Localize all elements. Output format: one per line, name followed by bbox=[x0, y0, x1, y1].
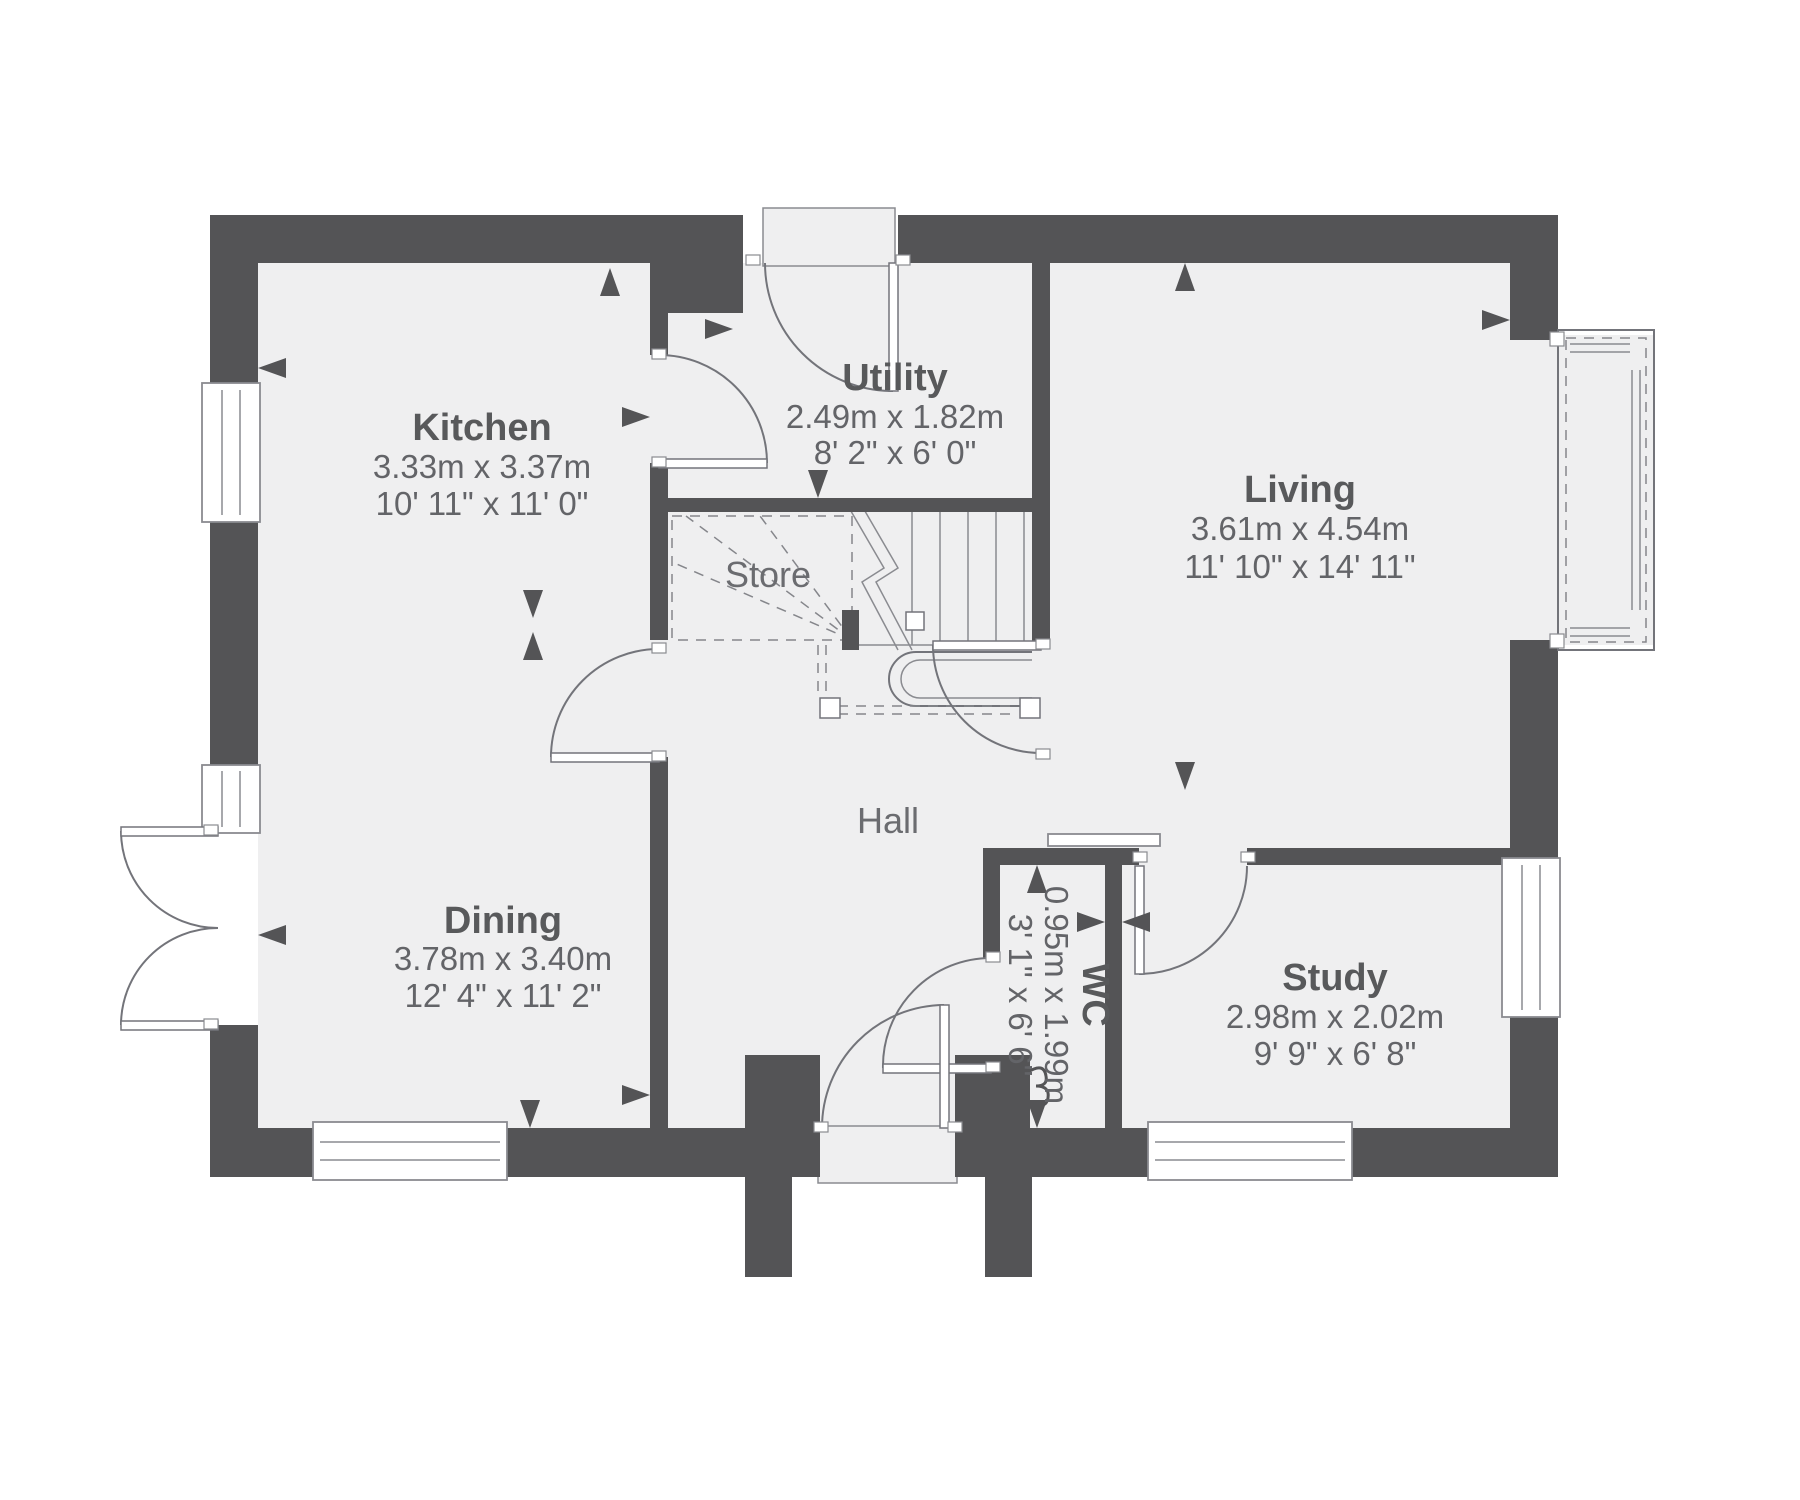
wall-dining-hall bbox=[650, 757, 668, 1128]
utility-title: Utility bbox=[842, 357, 948, 399]
floor-plan-page: Kitchen 3.33m x 3.37m 10' 11" x 11' 0" U… bbox=[0, 0, 1800, 1500]
entry-side-wall-left bbox=[745, 1055, 820, 1128]
wall-kitchen-store bbox=[650, 463, 668, 640]
dining-title: Dining bbox=[444, 900, 562, 942]
exterior-wall-right-lower bbox=[1510, 1015, 1558, 1177]
study-side-window bbox=[1502, 858, 1560, 1017]
wc-size-imperial: 3' 1" x 6' 6" bbox=[1002, 914, 1039, 1077]
wall-wc-top bbox=[983, 848, 1105, 865]
kitchen-window bbox=[202, 383, 260, 522]
living-size-imperial: 11' 10" x 14' 11" bbox=[1184, 548, 1415, 585]
wall-study-top-right bbox=[1247, 848, 1510, 865]
wc-size-metric: 0.95m x 1.99m bbox=[1038, 886, 1075, 1104]
bay-jamb bbox=[1550, 634, 1564, 648]
floor-areas bbox=[258, 208, 1654, 1183]
wall-kitchen-utility-corner bbox=[650, 215, 743, 313]
exterior-wall-right-upper bbox=[1510, 215, 1558, 340]
exterior-wall-bottom-3 bbox=[955, 1128, 1150, 1177]
wall-utility-stairs bbox=[650, 498, 1050, 512]
stair-newel-square bbox=[1020, 698, 1040, 718]
living-size-metric: 3.61m x 4.54m bbox=[1191, 510, 1409, 547]
exterior-wall-top-right bbox=[898, 215, 1558, 263]
dining-side-window bbox=[202, 765, 260, 833]
kitchen-title: Kitchen bbox=[412, 407, 551, 449]
dining-size-imperial: 12' 4" x 11' 2" bbox=[405, 977, 602, 1014]
study-size-metric: 2.98m x 2.02m bbox=[1226, 998, 1444, 1035]
study-title: Study bbox=[1282, 957, 1388, 999]
study-bottom-window bbox=[1148, 1122, 1352, 1180]
kitchen-size-imperial: 10' 11" x 11' 0" bbox=[376, 485, 589, 522]
stair-newel-square bbox=[906, 612, 924, 630]
wall-wc-left-lower bbox=[983, 1068, 1000, 1128]
stair-newel-square bbox=[820, 698, 840, 718]
kitchen-size-metric: 3.33m x 3.37m bbox=[373, 448, 591, 485]
living-title: Living bbox=[1244, 469, 1356, 511]
wc-title: WC bbox=[1074, 963, 1116, 1026]
hall-label: Hall bbox=[857, 800, 919, 841]
porch-back bbox=[763, 208, 895, 266]
wall-stub-right bbox=[985, 1177, 1032, 1277]
stair-newel-post bbox=[842, 610, 859, 650]
dining-bottom-window bbox=[313, 1122, 507, 1180]
floor-plan: Kitchen 3.33m x 3.37m 10' 11" x 11' 0" U… bbox=[0, 0, 1800, 1500]
store-label: Store bbox=[725, 554, 811, 595]
wall-stub-left bbox=[745, 1177, 792, 1277]
bay-jamb bbox=[1550, 332, 1564, 346]
porch-front bbox=[818, 1126, 957, 1183]
utility-size-metric: 2.49m x 1.82m bbox=[786, 398, 1004, 435]
exterior-wall-bottom-2 bbox=[505, 1128, 820, 1177]
wc-lintel-line bbox=[1048, 834, 1160, 846]
wall-living-hall bbox=[1032, 263, 1050, 645]
exterior-wall-right-middle bbox=[1510, 640, 1558, 860]
exterior-wall-bottom-1 bbox=[210, 1128, 315, 1177]
dining-size-metric: 3.78m x 3.40m bbox=[394, 940, 612, 977]
exterior-wall-top-left bbox=[210, 215, 650, 263]
utility-size-imperial: 8' 2" x 6' 0" bbox=[814, 434, 977, 471]
exterior-wall-left-middle bbox=[210, 520, 258, 767]
exterior-wall-left-upper bbox=[210, 215, 258, 385]
study-size-imperial: 9' 9" x 6' 8" bbox=[1254, 1035, 1417, 1072]
